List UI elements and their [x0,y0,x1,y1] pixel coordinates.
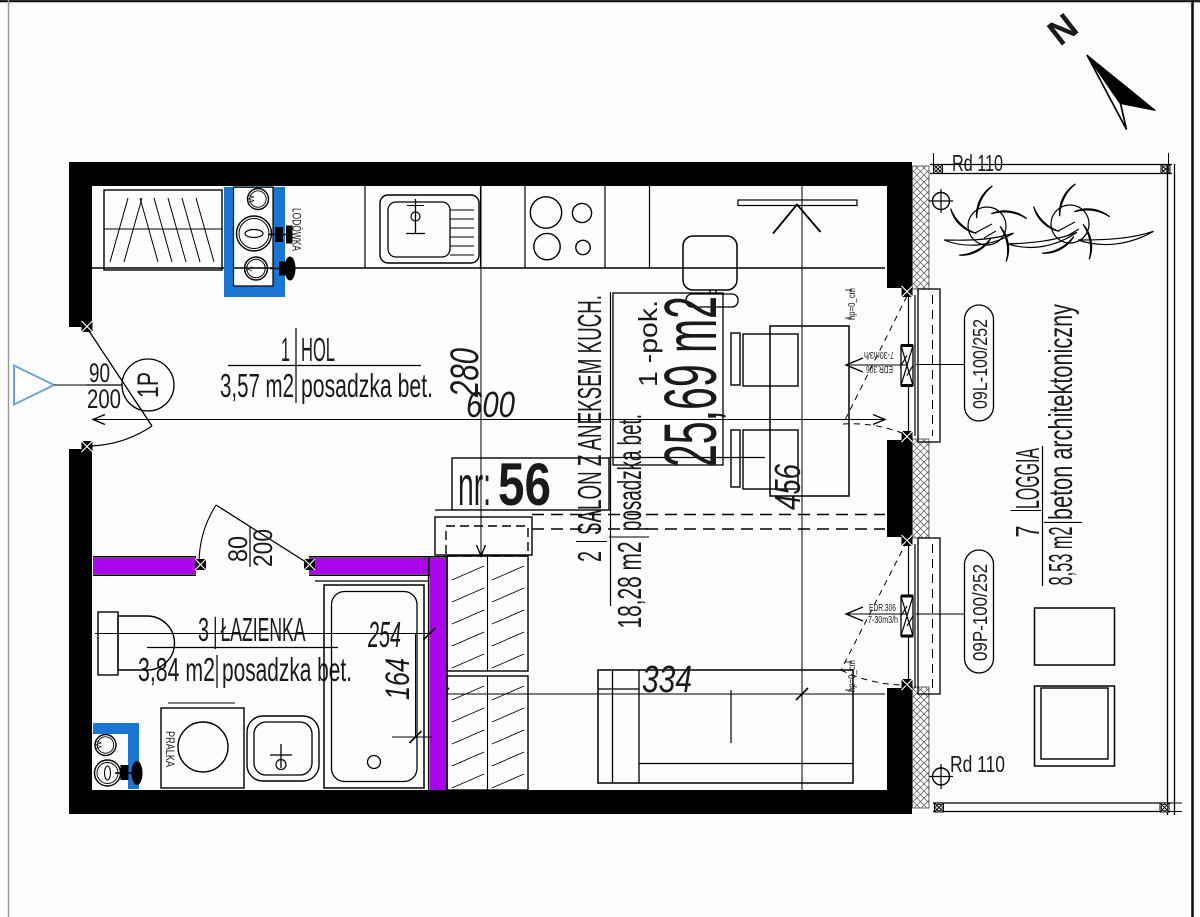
svg-text:SALON Z ANEKSEM KUCH.: SALON Z ANEKSEM KUCH. [571,295,608,535]
svg-text:200: 200 [248,529,278,567]
svg-text:beton architektoniczny: beton architektoniczny [1042,304,1079,520]
svg-text:nr:: nr: [458,454,491,517]
svg-text:W: W [246,194,256,203]
svg-text:254: 254 [367,614,401,655]
svg-text:posadzka bet.: posadzka bet. [222,651,352,688]
svg-text:09L-100/252: 09L-100/252 [970,319,992,409]
svg-text:ŁAZIENKA: ŁAZIENKA [221,611,306,648]
svg-text:7: 7 [1009,526,1046,538]
svg-text:456: 456 [767,463,808,510]
svg-text:LODÓWKA: LODÓWKA [290,208,303,251]
svg-text:09P-100/252: 09P-100/252 [970,564,992,661]
svg-text:1P: 1P [132,372,165,398]
svg-text:56: 56 [498,451,551,518]
svg-text:1 -pok.: 1 -pok. [633,300,663,387]
svg-text:posadzka bet.: posadzka bet. [301,367,433,404]
svg-text:7-30m3/h: 7-30m3/h [864,349,894,361]
svg-text:W: W [94,740,104,749]
svg-text:7-30m3/h: 7-30m3/h [868,614,898,626]
svg-text:X: X [244,266,254,272]
svg-text:2: 2 [571,551,608,562]
svg-text:3,57 m2: 3,57 m2 [220,367,294,404]
svg-text:334: 334 [642,659,692,701]
svg-text:EDR.306: EDR.306 [866,363,893,375]
svg-text:1: 1 [281,331,290,368]
svg-text:EDR.306: EDR.306 [869,602,896,614]
svg-text:Rd 110: Rd 110 [952,150,1003,176]
svg-text:164: 164 [379,658,417,700]
svg-text:hp=0_cm: hp=0_cm [847,288,858,320]
svg-text:hp=0_cm: hp=0_cm [847,660,858,692]
svg-text:600: 600 [466,384,515,425]
svg-text:HOL: HOL [301,331,335,368]
svg-text:PRALKA: PRALKA [163,731,175,767]
svg-text:200: 200 [87,384,121,414]
svg-text:Rd 110: Rd 110 [950,751,1005,777]
svg-text:3: 3 [198,611,209,648]
svg-text:18,28 m2: 18,28 m2 [611,542,648,629]
svg-text:LOGGIA: LOGGIA [1009,448,1046,509]
svg-text:8,53 m2: 8,53 m2 [1042,527,1079,586]
svg-text:posadzka bet.: posadzka bet. [611,414,648,531]
